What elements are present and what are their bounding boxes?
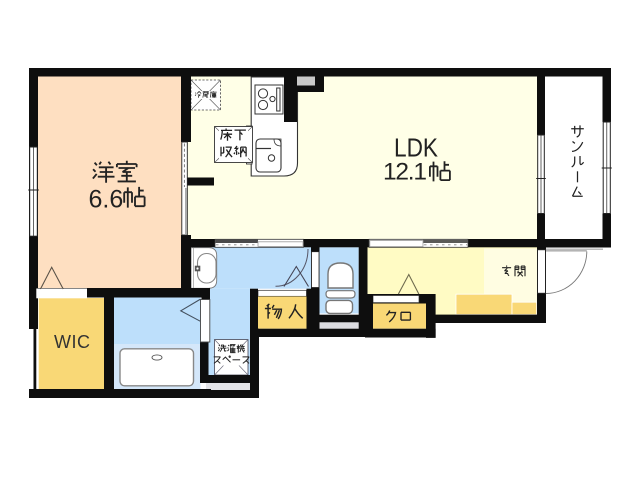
svg-text:6.6: 6.6 [89, 186, 124, 214]
svg-text:WIC: WIC [54, 332, 91, 352]
svg-text:12.1: 12.1 [383, 159, 427, 186]
